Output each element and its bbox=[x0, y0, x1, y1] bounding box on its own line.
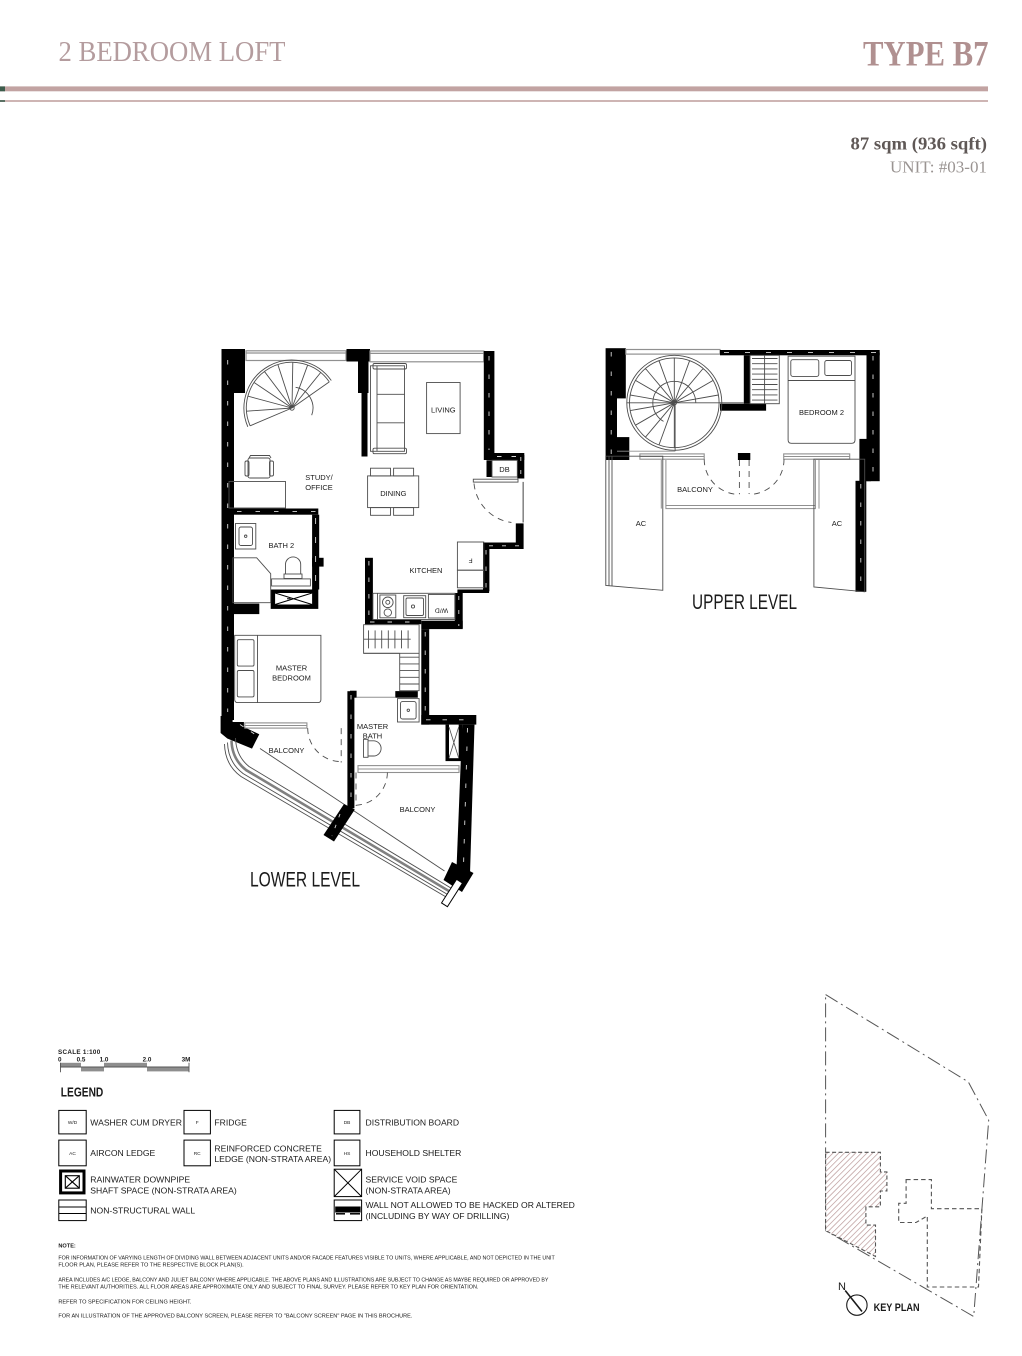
svg-text:2 BEDROOM LOFT: 2 BEDROOM LOFT bbox=[59, 36, 286, 68]
svg-text:TYPE B7: TYPE B7 bbox=[863, 34, 989, 74]
svg-text:HS: HS bbox=[344, 1151, 351, 1157]
svg-text:0: 0 bbox=[58, 1056, 62, 1063]
svg-text:BATH: BATH bbox=[363, 732, 382, 741]
svg-text:THE RELEVANT AUTHORITIES. ALL: THE RELEVANT AUTHORITIES. ALL FLOOR AREA… bbox=[58, 1284, 478, 1290]
svg-text:SERVICE VOID SPACE: SERVICE VOID SPACE bbox=[366, 1174, 458, 1184]
svg-text:BEDROOM 2: BEDROOM 2 bbox=[799, 408, 844, 417]
svg-text:REINFORCED CONCRETE: REINFORCED CONCRETE bbox=[214, 1143, 322, 1153]
svg-text:FLOOR PLAN, PLEASE REFER TO TH: FLOOR PLAN, PLEASE REFER TO THE RESPECTI… bbox=[58, 1262, 244, 1268]
svg-text:KITCHEN: KITCHEN bbox=[410, 566, 443, 575]
svg-text:RC: RC bbox=[194, 1151, 201, 1157]
svg-text:BALCONY: BALCONY bbox=[400, 805, 436, 814]
svg-text:STUDY/: STUDY/ bbox=[305, 473, 333, 482]
svg-text:LOWER LEVEL: LOWER LEVEL bbox=[250, 867, 360, 891]
svg-text:N: N bbox=[838, 1281, 846, 1293]
svg-text:DISTRIBUTION BOARD: DISTRIBUTION BOARD bbox=[366, 1117, 460, 1127]
svg-text:MASTER: MASTER bbox=[276, 664, 308, 673]
svg-text:F: F bbox=[196, 1120, 199, 1126]
svg-text:3M: 3M bbox=[182, 1056, 191, 1063]
svg-text:HOUSEHOLD SHELTER: HOUSEHOLD SHELTER bbox=[366, 1148, 462, 1158]
svg-text:AC: AC bbox=[636, 519, 647, 528]
svg-text:KEY PLAN: KEY PLAN bbox=[874, 1302, 920, 1314]
svg-text:RAINWATER DOWNPIPE: RAINWATER DOWNPIPE bbox=[90, 1174, 190, 1184]
svg-text:SHAFT SPACE (NON-STRATA AREA): SHAFT SPACE (NON-STRATA AREA) bbox=[90, 1185, 237, 1195]
svg-text:87 sqm (936 sqft): 87 sqm (936 sqft) bbox=[851, 134, 988, 155]
svg-text:REFER TO SPECIFICATION FOR CEI: REFER TO SPECIFICATION FOR CEILING HEIGH… bbox=[58, 1299, 191, 1305]
svg-text:AIRCON LEDGE: AIRCON LEDGE bbox=[90, 1148, 155, 1158]
svg-text:LEDGE (NON-STRATA AREA): LEDGE (NON-STRATA AREA) bbox=[214, 1154, 331, 1164]
svg-text:LEGEND: LEGEND bbox=[61, 1086, 104, 1100]
svg-text:SCALE 1:100: SCALE 1:100 bbox=[58, 1049, 101, 1056]
svg-text:(INCLUDING BY WAY OF DRILLING): (INCLUDING BY WAY OF DRILLING) bbox=[366, 1211, 510, 1221]
svg-text:DB: DB bbox=[344, 1120, 351, 1126]
svg-text:BEDROOM: BEDROOM bbox=[272, 674, 311, 683]
svg-text:DINING: DINING bbox=[380, 489, 406, 498]
svg-text:W/D: W/D bbox=[435, 607, 448, 614]
svg-text:W/D: W/D bbox=[68, 1120, 78, 1126]
svg-text:DB: DB bbox=[499, 465, 509, 474]
svg-text:FRIDGE: FRIDGE bbox=[214, 1117, 247, 1127]
svg-text:F: F bbox=[469, 557, 473, 564]
svg-text:OFFICE: OFFICE bbox=[305, 483, 333, 492]
svg-text:WALL NOT ALLOWED TO BE HACKED: WALL NOT ALLOWED TO BE HACKED OR ALTERED bbox=[366, 1200, 575, 1210]
svg-text:AC: AC bbox=[69, 1151, 76, 1157]
svg-text:UNIT: #03-01: UNIT: #03-01 bbox=[890, 158, 987, 177]
svg-text:BALCONY: BALCONY bbox=[677, 485, 713, 494]
svg-text:AREA INCLUDES A/C LEDGE, BALCO: AREA INCLUDES A/C LEDGE, BALCONY AND JUL… bbox=[58, 1277, 548, 1283]
svg-text:LIVING: LIVING bbox=[431, 406, 456, 415]
svg-text:(NON-STRATA AREA): (NON-STRATA AREA) bbox=[366, 1185, 451, 1195]
svg-text:WASHER CUM DRYER: WASHER CUM DRYER bbox=[90, 1117, 182, 1127]
svg-text:2.0: 2.0 bbox=[143, 1056, 152, 1063]
svg-text:1.0: 1.0 bbox=[100, 1056, 109, 1063]
svg-text:NON-STRUCTURAL WALL: NON-STRUCTURAL WALL bbox=[90, 1205, 195, 1215]
svg-text:FOR AN ILLUSTRATION OF THE APP: FOR AN ILLUSTRATION OF THE APPROVED BALC… bbox=[58, 1313, 413, 1319]
svg-text:0.5: 0.5 bbox=[77, 1056, 86, 1063]
svg-text:BALCONY: BALCONY bbox=[269, 746, 305, 755]
svg-text:NOTE:: NOTE: bbox=[58, 1243, 76, 1249]
svg-text:BATH 2: BATH 2 bbox=[268, 541, 294, 550]
svg-text:MASTER: MASTER bbox=[357, 722, 389, 731]
svg-text:FOR INFORMATION OF VARYING LEN: FOR INFORMATION OF VARYING LENGTH OF DIV… bbox=[58, 1255, 555, 1261]
svg-text:UPPER LEVEL: UPPER LEVEL bbox=[692, 590, 797, 614]
svg-text:AC: AC bbox=[832, 519, 843, 528]
